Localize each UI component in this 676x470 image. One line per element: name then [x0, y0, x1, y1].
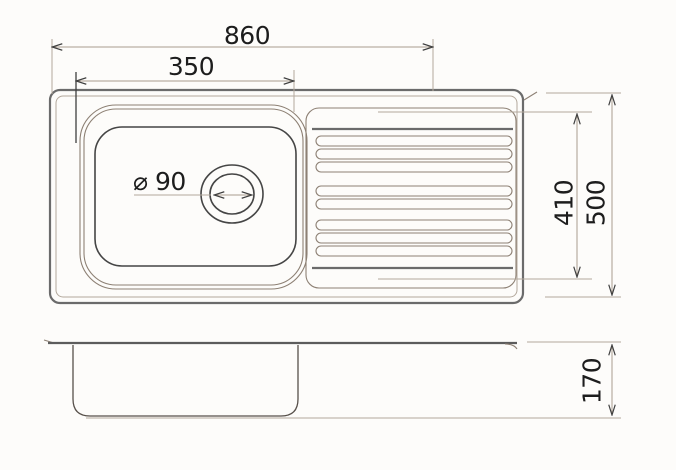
- bowl-inner-edge: [95, 127, 296, 266]
- side-rim-curl: [505, 344, 517, 349]
- drainer-rib: [316, 162, 512, 172]
- bowl-width-label: 350: [168, 52, 214, 81]
- drainer-length-label: 410: [550, 180, 579, 226]
- drain-diameter-label: ⌀ 90: [133, 167, 186, 196]
- top-view: ⌀ 90: [50, 90, 537, 303]
- bowl-depth-label: 170: [578, 358, 607, 404]
- drainer-outline: [306, 108, 516, 288]
- overall-width-label: 860: [224, 21, 270, 50]
- drawing-canvas: ⌀ 90 860 350 410: [0, 0, 676, 470]
- drainer-rib: [316, 136, 512, 146]
- drainer-rib: [316, 149, 512, 159]
- drainer-rib: [316, 246, 512, 256]
- drainer-panel: [306, 108, 516, 288]
- drainer-rib: [316, 199, 512, 209]
- overall-depth-label: 500: [582, 180, 611, 226]
- bowl-mid-contour: [84, 109, 303, 285]
- dim-bowl-depth: 170: [527, 342, 621, 415]
- sink-technical-drawing: ⌀ 90 860 350 410: [0, 0, 676, 470]
- drainer-rib: [316, 233, 512, 243]
- drainer-rib: [316, 186, 512, 196]
- corner-tick: [524, 92, 537, 100]
- side-view: [44, 340, 621, 418]
- drainer-rib: [316, 220, 512, 230]
- bowl-profile: [73, 345, 298, 416]
- bowl-outer-contour: [80, 105, 307, 289]
- dim-overall-width: 860: [52, 21, 433, 94]
- drain-inner-circle: [210, 174, 254, 214]
- dim-bowl-width: 350: [76, 52, 294, 143]
